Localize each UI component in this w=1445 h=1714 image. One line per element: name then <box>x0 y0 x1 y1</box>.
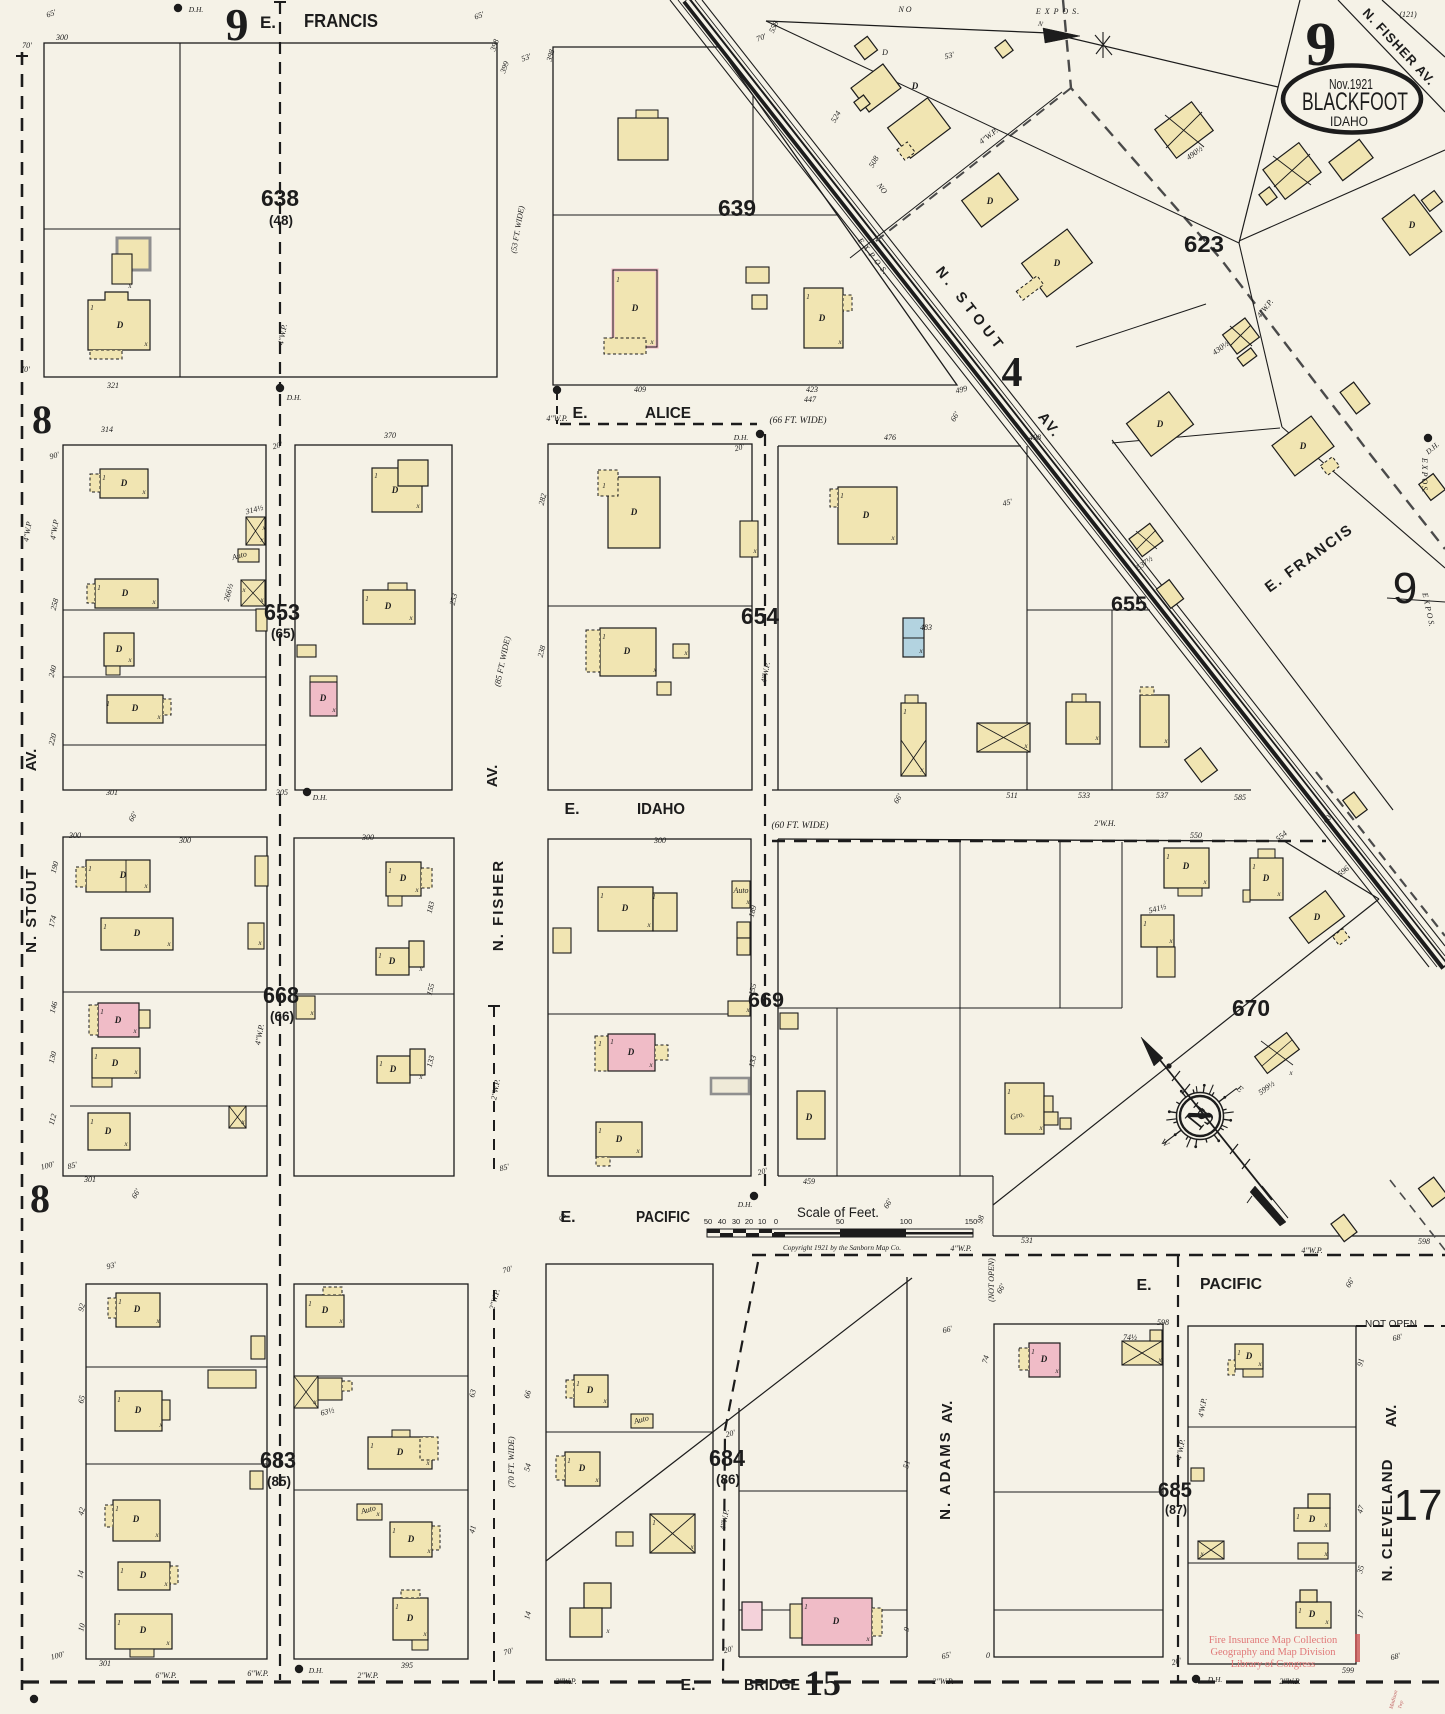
svg-text:599: 599 <box>1342 1666 1354 1675</box>
svg-text:670: 670 <box>1232 995 1270 1021</box>
svg-text:D: D <box>406 1613 414 1623</box>
svg-text:30: 30 <box>732 1217 740 1226</box>
svg-text:1: 1 <box>903 708 907 716</box>
svg-text:D: D <box>615 1134 623 1144</box>
svg-text:15: 15 <box>805 1663 841 1703</box>
svg-text:1: 1 <box>652 893 656 901</box>
svg-text:1: 1 <box>117 1396 121 1404</box>
svg-text:D: D <box>132 1514 140 1524</box>
svg-text:305: 305 <box>275 788 288 797</box>
svg-text:E.: E. <box>680 1677 695 1694</box>
svg-text:NOT OPEN: NOT OPEN <box>1365 1319 1417 1330</box>
svg-text:D.H.: D.H. <box>737 1200 753 1209</box>
svg-text:10: 10 <box>758 1217 766 1226</box>
svg-text:4: 4 <box>1002 350 1023 396</box>
svg-text:598: 598 <box>1418 1237 1430 1246</box>
svg-text:447: 447 <box>804 395 817 404</box>
svg-text:(66 FT. WIDE): (66 FT. WIDE) <box>769 415 826 426</box>
svg-text:D: D <box>630 507 638 517</box>
svg-text:0: 0 <box>986 1651 990 1660</box>
svg-text:1: 1 <box>103 923 107 931</box>
svg-text:1: 1 <box>94 1053 98 1061</box>
svg-text:537: 537 <box>1156 791 1169 800</box>
svg-text:1: 1 <box>567 1457 571 1465</box>
svg-text:D: D <box>134 1405 142 1415</box>
svg-text:(NOT OPEN): (NOT OPEN) <box>987 1258 996 1302</box>
svg-text:598: 598 <box>1157 1318 1169 1327</box>
svg-text:423: 423 <box>806 385 818 394</box>
svg-text:1: 1 <box>602 633 606 641</box>
svg-text:395: 395 <box>400 1661 413 1670</box>
svg-text:1: 1 <box>652 1519 656 1527</box>
svg-text:D: D <box>1262 873 1270 883</box>
svg-text:1: 1 <box>102 474 106 482</box>
svg-text:D: D <box>1308 1514 1316 1524</box>
svg-text:1: 1 <box>1298 1607 1302 1615</box>
svg-text:D: D <box>111 1058 119 1068</box>
svg-text:2"W.P.: 2"W.P. <box>932 1677 953 1686</box>
svg-text:653: 653 <box>264 599 300 625</box>
svg-text:684: 684 <box>709 1445 745 1471</box>
svg-text:N. ADAMS: N. ADAMS <box>937 1430 954 1520</box>
svg-text:1: 1 <box>365 595 369 603</box>
svg-text:50: 50 <box>836 1217 844 1226</box>
svg-text:321: 321 <box>106 381 119 390</box>
svg-text:585: 585 <box>1234 793 1246 802</box>
svg-text:1: 1 <box>806 293 810 301</box>
svg-text:(70 FT. WIDE): (70 FT. WIDE) <box>506 1436 516 1487</box>
svg-text:D: D <box>832 1616 840 1626</box>
svg-text:D: D <box>1308 1609 1316 1619</box>
svg-text:1: 1 <box>374 472 378 480</box>
svg-text:1: 1 <box>1031 1348 1035 1356</box>
svg-text:655: 655 <box>1111 593 1147 616</box>
svg-text:9: 9 <box>1306 11 1337 79</box>
svg-text:D: D <box>631 303 639 313</box>
svg-text:D: D <box>139 1625 147 1635</box>
svg-text:531: 531 <box>1021 1236 1033 1245</box>
svg-text:D: D <box>116 320 124 330</box>
svg-text:D: D <box>1053 258 1061 268</box>
svg-text:1: 1 <box>1296 1513 1300 1521</box>
svg-text:639: 639 <box>718 195 756 221</box>
svg-text:1: 1 <box>576 1380 580 1388</box>
svg-text:50: 50 <box>704 1217 712 1226</box>
svg-text:FRANCIS: FRANCIS <box>304 11 378 31</box>
svg-text:N. STOUT: N. STOUT <box>23 867 40 953</box>
svg-text:300: 300 <box>55 33 68 42</box>
svg-text:1: 1 <box>602 482 606 490</box>
svg-text:Auto: Auto <box>732 886 748 895</box>
svg-text:483: 483 <box>920 623 932 632</box>
svg-text:409: 409 <box>634 385 646 394</box>
svg-text:D: D <box>389 1064 397 1074</box>
svg-text:1: 1 <box>804 1603 808 1611</box>
svg-text:D: D <box>1040 1354 1048 1364</box>
svg-text:D: D <box>133 1304 141 1314</box>
svg-text:2"W.P.: 2"W.P. <box>357 1671 378 1680</box>
svg-text:D: D <box>119 870 127 880</box>
svg-text:D: D <box>1182 861 1190 871</box>
svg-text:D: D <box>121 588 129 598</box>
svg-text:4"W.P.: 4"W.P. <box>546 414 567 423</box>
svg-text:1: 1 <box>1143 920 1147 928</box>
svg-text:D: D <box>384 601 392 611</box>
svg-text:1: 1 <box>97 584 101 592</box>
svg-text:BLACKFOOT: BLACKFOOT <box>1302 88 1408 116</box>
svg-text:654: 654 <box>741 603 779 629</box>
svg-text:533: 533 <box>1078 791 1090 800</box>
svg-text:E.: E. <box>1136 1277 1151 1294</box>
svg-text:685: 685 <box>1158 1479 1192 1502</box>
svg-text:476: 476 <box>884 433 896 442</box>
svg-text:E X P O S.: E X P O S. <box>1035 7 1080 16</box>
svg-text:D: D <box>133 928 141 938</box>
svg-text:D: D <box>586 1385 594 1395</box>
svg-text:E.: E. <box>260 13 276 32</box>
svg-text:300: 300 <box>178 836 191 845</box>
svg-text:BRIDGE: BRIDGE <box>744 1677 800 1694</box>
svg-text:1: 1 <box>308 1300 312 1308</box>
svg-text:1: 1 <box>1166 853 1170 861</box>
svg-text:D: D <box>407 1534 415 1544</box>
svg-text:D: D <box>578 1463 586 1473</box>
svg-text:D: D <box>818 313 826 323</box>
svg-text:550: 550 <box>1190 831 1202 840</box>
svg-text:2"W.P.: 2"W.P. <box>555 1677 576 1686</box>
svg-text:498: 498 <box>1029 433 1041 442</box>
svg-text:2"W.P.: 2"W.P. <box>1279 1677 1300 1686</box>
svg-text:459: 459 <box>803 1177 815 1186</box>
svg-text:AV.: AV. <box>1383 1405 1400 1428</box>
svg-text:301: 301 <box>105 788 118 797</box>
svg-text:1: 1 <box>395 1603 399 1611</box>
svg-text:1: 1 <box>616 276 620 284</box>
svg-text:IDAHO: IDAHO <box>637 801 685 818</box>
svg-text:D: D <box>627 1047 635 1057</box>
svg-text:74½: 74½ <box>1123 1333 1137 1342</box>
svg-text:638: 638 <box>261 185 299 211</box>
svg-text:NO: NO <box>897 5 913 14</box>
svg-text:511: 511 <box>1006 791 1017 800</box>
svg-text:D: D <box>1245 1351 1253 1361</box>
svg-text:623: 623 <box>1184 231 1224 257</box>
svg-text:0: 0 <box>774 1217 778 1226</box>
svg-text:(65): (65) <box>271 626 295 641</box>
svg-text:1: 1 <box>1237 1349 1241 1357</box>
svg-text:1: 1 <box>392 1527 396 1535</box>
svg-text:300: 300 <box>361 833 374 842</box>
svg-text:(66): (66) <box>270 1009 294 1024</box>
svg-text:(85): (85) <box>267 1474 291 1489</box>
svg-text:1: 1 <box>379 1060 383 1068</box>
svg-text:D: D <box>321 1305 329 1315</box>
svg-text:1: 1 <box>90 1118 94 1126</box>
svg-text:D: D <box>1299 441 1307 451</box>
svg-text:668: 668 <box>263 982 299 1008</box>
svg-text:301: 301 <box>98 1659 111 1668</box>
svg-text:1: 1 <box>610 1038 614 1046</box>
svg-text:1: 1 <box>378 952 382 960</box>
svg-text:N. FISHER: N. FISHER <box>490 859 507 951</box>
svg-text:D: D <box>1313 912 1321 922</box>
svg-text:D: D <box>399 873 407 883</box>
svg-text:D: D <box>911 81 919 91</box>
svg-text:D: D <box>114 1015 122 1025</box>
svg-text:D: D <box>1156 419 1164 429</box>
svg-text:D: D <box>805 1112 813 1122</box>
svg-text:314: 314 <box>100 425 113 434</box>
svg-text:6"W.P.: 6"W.P. <box>247 1669 268 1678</box>
svg-text:6"W.P.: 6"W.P. <box>155 1671 176 1680</box>
svg-text:N. CLEVELAND: N. CLEVELAND <box>1379 1459 1396 1582</box>
svg-text:1: 1 <box>120 1567 124 1575</box>
svg-text:(60 FT. WIDE): (60 FT. WIDE) <box>771 820 828 831</box>
svg-text:301: 301 <box>83 1175 96 1184</box>
svg-text:1: 1 <box>88 865 92 873</box>
svg-text:1: 1 <box>388 867 392 875</box>
svg-text:1: 1 <box>840 492 844 500</box>
svg-text:8: 8 <box>32 397 52 442</box>
svg-text:2'W.H.: 2'W.H. <box>1094 819 1115 828</box>
svg-text:9: 9 <box>226 0 249 50</box>
svg-text:D: D <box>1408 220 1416 230</box>
svg-text:1: 1 <box>117 1619 121 1627</box>
svg-text:AV.: AV. <box>939 1401 956 1424</box>
svg-text:Library of Congress: Library of Congress <box>1231 1659 1316 1670</box>
svg-text:70': 70' <box>22 41 32 50</box>
svg-text:IDAHO: IDAHO <box>1330 113 1368 129</box>
svg-text:Copyright 1921 by the Sanborn: Copyright 1921 by the Sanborn Map Co. <box>783 1244 901 1252</box>
svg-text:D: D <box>131 703 139 713</box>
svg-text:E X P O S.: E X P O S. <box>1420 457 1429 492</box>
svg-text:1: 1 <box>100 1008 104 1016</box>
svg-text:4"W.P.: 4"W.P. <box>1301 1246 1322 1255</box>
svg-text:9: 9 <box>1393 564 1417 613</box>
svg-text:1: 1 <box>118 1298 122 1306</box>
svg-text:1: 1 <box>106 700 110 708</box>
svg-text:1: 1 <box>598 1040 602 1048</box>
svg-text:1: 1 <box>600 892 604 900</box>
svg-text:PACIFIC: PACIFIC <box>1200 1276 1262 1293</box>
svg-text:Fire Insurance Map Collection: Fire Insurance Map Collection <box>1209 1635 1338 1646</box>
svg-text:1: 1 <box>370 1442 374 1450</box>
svg-text:1: 1 <box>1007 1088 1011 1096</box>
svg-text:(87): (87) <box>1165 1502 1187 1517</box>
svg-text:100: 100 <box>900 1217 913 1226</box>
svg-text:D: D <box>120 478 128 488</box>
svg-text:683: 683 <box>260 1447 296 1473</box>
svg-text:8: 8 <box>30 1176 50 1221</box>
svg-text:D: D <box>104 1126 112 1136</box>
svg-text:D: D <box>115 644 123 654</box>
svg-text:D.H.: D.H. <box>1207 1675 1223 1684</box>
svg-text:D: D <box>139 1570 147 1580</box>
svg-text:E.: E. <box>572 405 587 422</box>
svg-text:300: 300 <box>653 836 666 845</box>
svg-text:(86): (86) <box>716 1472 740 1487</box>
svg-text:PACIFIC: PACIFIC <box>636 1209 690 1226</box>
svg-text:AV.: AV. <box>23 749 40 772</box>
svg-text:D: D <box>319 693 327 703</box>
svg-text:D: D <box>623 646 631 656</box>
svg-text:1: 1 <box>90 304 94 312</box>
svg-text:D.H.: D.H. <box>188 5 204 14</box>
svg-text:D: D <box>986 196 994 206</box>
svg-text:AV.: AV. <box>484 765 501 788</box>
svg-text:1: 1 <box>1252 863 1256 871</box>
svg-text:1: 1 <box>598 1127 602 1135</box>
svg-text:300: 300 <box>68 831 81 840</box>
svg-text:D.H.: D.H. <box>308 1666 324 1675</box>
svg-text:ALICE: ALICE <box>645 405 691 422</box>
svg-text:(121): (121) <box>1399 10 1417 19</box>
svg-text:20: 20 <box>745 1217 753 1226</box>
svg-text:D: D <box>621 903 629 913</box>
svg-text:4"W.P.: 4"W.P. <box>950 1244 971 1253</box>
svg-text:D: D <box>391 485 399 495</box>
svg-text:70': 70' <box>20 365 30 374</box>
svg-text:(48): (48) <box>269 213 293 228</box>
svg-text:370: 370 <box>383 431 396 440</box>
svg-text:D.H.: D.H. <box>312 793 328 802</box>
svg-text:D.H.: D.H. <box>733 433 749 442</box>
svg-text:1: 1 <box>115 1505 119 1513</box>
svg-text:40: 40 <box>718 1217 726 1226</box>
svg-text:D: D <box>881 48 888 57</box>
svg-text:D.H.: D.H. <box>286 393 302 402</box>
svg-text:D: D <box>388 956 396 966</box>
svg-text:E.: E. <box>564 801 579 818</box>
svg-text:Geography and Map Division: Geography and Map Division <box>1210 1647 1336 1658</box>
svg-text:17: 17 <box>1394 1481 1443 1530</box>
svg-text:D: D <box>396 1447 404 1457</box>
svg-text:D: D <box>862 510 870 520</box>
